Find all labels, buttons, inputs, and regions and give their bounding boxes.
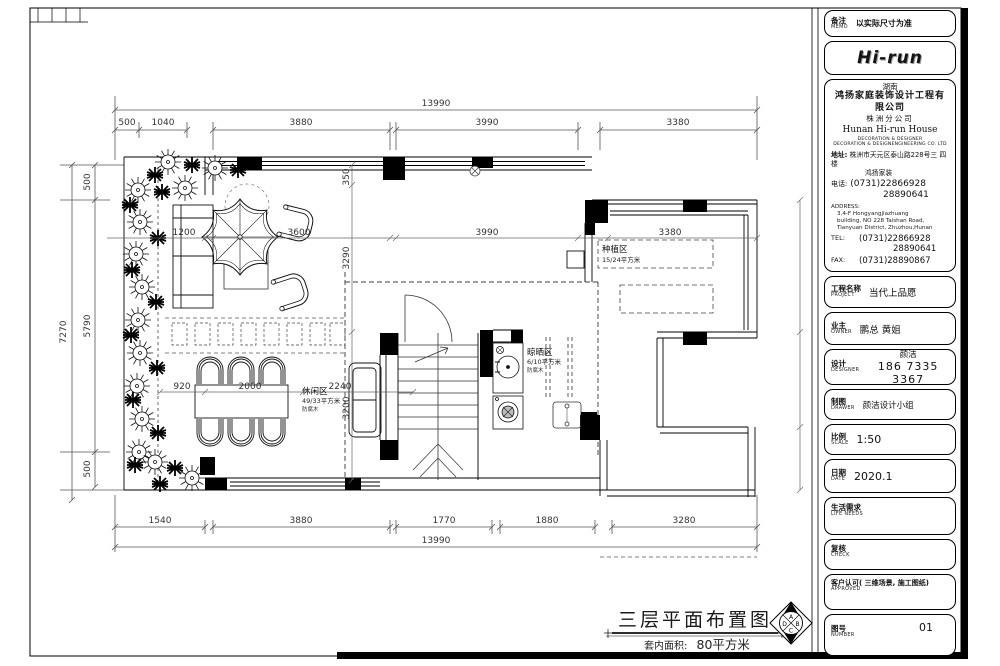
area-label-planting: 种植区 15/24平方米 — [602, 244, 641, 264]
svg-text:C: C — [789, 628, 793, 635]
area-label-drying: 晾晒区 6/10平方米 防腐木 — [527, 347, 562, 374]
door — [405, 295, 452, 342]
dimension-bottom — [112, 495, 760, 557]
dining-chair — [259, 357, 285, 384]
kitchen-counter — [493, 343, 523, 429]
svg-text:6/10平方米: 6/10平方米 — [527, 357, 562, 366]
titleblock-project: 工程名称 PROJECT 当代上品愿 — [824, 276, 956, 308]
titleblock-memo: 备注 MEMO 以实际尺寸为准 — [824, 10, 956, 37]
wall-column — [581, 412, 597, 433]
dim-bot-total: 13990 — [422, 536, 451, 546]
dim-inner-920: 920 — [173, 382, 190, 392]
owner-value: 鹏总 黄姐 — [860, 322, 901, 336]
svg-text:防腐木: 防腐木 — [302, 405, 319, 413]
memo-value: 以实际尺寸为准 — [856, 18, 912, 29]
staircase — [398, 333, 478, 480]
dim-inner-3290: 3290 — [342, 246, 352, 269]
drawing-title: 三层平面布置图 套内面积: 80平方米 — [604, 609, 787, 653]
svg-text:B: B — [795, 621, 799, 628]
dim-top-total: 13990 — [422, 99, 451, 109]
titleblock-scale: 比例 SCALE 1:50 — [824, 424, 956, 455]
drawing-area-value: 80平方米 — [697, 637, 751, 652]
dining-chair — [228, 419, 254, 446]
dim-left-3: 500 — [83, 460, 93, 477]
dim-inner-1200: 1200 — [173, 228, 196, 238]
dim-top-4: 3990 — [476, 118, 499, 128]
svg-text:D: D — [782, 621, 787, 628]
company-fax: FAX: (0731)28890867 — [831, 256, 949, 266]
dining-chair — [197, 419, 223, 446]
dim-top-5: 3380 — [667, 118, 690, 128]
titleblock-designer: 设计 DESIGNER 颜洁 186 7335 3367 — [824, 349, 956, 385]
drawer-value: 颜洁设计小组 — [863, 399, 914, 411]
cad-drawing-sheet: { "title_block": { "memo": {"label":"备注"… — [0, 0, 1000, 666]
dim-bot-2: 3880 — [290, 516, 313, 526]
svg-text:49/33平方米: 49/33平方米 — [302, 396, 341, 405]
terrace-bench — [173, 205, 213, 308]
company-logo: Hi-run — [831, 44, 949, 72]
dining-chair — [259, 419, 285, 446]
titleblock-check: 复核 CHECK — [824, 539, 956, 570]
dim-inner-3200: 3200 — [342, 396, 352, 419]
dim-bot-1: 1540 — [149, 516, 172, 526]
dim-inner-350: 350 — [342, 168, 352, 185]
company-address-en: ADDRESS: 3,4-F Hongyangjiazhuang buildin… — [831, 204, 949, 232]
dim-inner-3380: 3380 — [659, 228, 682, 238]
dim-left-1: 500 — [83, 173, 93, 190]
dim-top-2: 1040 — [152, 118, 175, 128]
titleblock-logo: Hi-run — [824, 41, 956, 75]
dim-inner-2000: 2000 — [239, 382, 262, 392]
dim-top-1: 500 — [118, 118, 135, 128]
svg-text:种植区: 种植区 — [602, 244, 628, 255]
svg-text:休闲区: 休闲区 — [302, 386, 328, 397]
dim-left-total: 7270 — [59, 320, 69, 343]
dim-left-2: 5790 — [83, 314, 93, 337]
date-value: 2020.1 — [854, 470, 893, 483]
designer-name: 颜洁 — [867, 349, 949, 360]
company-address: 地址: 株洲市天元区泰山路228号三 四楼 鸿扬家装 — [831, 151, 949, 177]
svg-text:防腐木: 防腐木 — [527, 366, 544, 374]
drawing-area-label: 套内面积: — [644, 639, 687, 652]
dining-table-set — [195, 357, 288, 446]
titleblock-number: 图号 NUMBER 01 — [824, 614, 956, 656]
titleblock-date: 日期 DATE 2020.1 — [824, 459, 956, 493]
paver-strip — [172, 323, 345, 345]
sheet-number-value: 01 — [919, 621, 933, 634]
svg-text:晾晒区: 晾晒区 — [527, 347, 553, 358]
north-compass-icon: A B C D — [770, 602, 812, 644]
svg-text:套内面积: 80平方米: 套内面积: 80平方米 — [644, 634, 750, 653]
loveseat — [349, 363, 381, 437]
patio-chair — [271, 271, 312, 312]
titleblock-approved: 客户认可( 三维场景, 施工图纸) APPROVED — [824, 574, 956, 610]
titleblock-company: 湖南 鸿扬家庭装饰设计工程有限公司 株洲分公司 Hunan Hi-run Hou… — [824, 79, 956, 272]
project-value: 当代上品愿 — [869, 285, 917, 299]
company-phone: 电话: (0731)22866928 28890641 — [831, 179, 949, 201]
light-symbol — [470, 166, 480, 176]
dim-bot-4: 1880 — [536, 516, 559, 526]
dim-inner-3990: 3990 — [476, 228, 499, 238]
dim-inner-3600: 3600 — [288, 228, 311, 238]
titleblock-life-needs: 生活需求 LIFE NEEDS — [824, 497, 956, 535]
dim-top-3: 3880 — [290, 118, 313, 128]
drawing-title-text: 三层平面布置图 — [618, 609, 772, 631]
svg-text:15/24平方米: 15/24平方米 — [602, 255, 641, 264]
titleblock-owner: 业主 OWNER 鹏总 黄姐 — [824, 312, 956, 345]
designer-phone: 186 7335 3367 — [867, 360, 949, 385]
patio-umbrella-table — [202, 184, 315, 311]
dim-inner-2240: 2240 — [329, 382, 352, 392]
dining-chair — [197, 357, 223, 384]
scale-value: 1:50 — [857, 433, 882, 446]
wall-box — [567, 251, 584, 268]
dim-bot-3: 1770 — [433, 516, 456, 526]
titleblock-drawer: 制图 DRAWER 颜洁设计小组 — [824, 389, 956, 420]
dining-chair — [228, 357, 254, 384]
title-block: 备注 MEMO 以实际尺寸为准 Hi-run 湖南 鸿扬家庭装饰设计工程有限公司… — [822, 0, 960, 666]
walls — [124, 157, 757, 497]
plants — [122, 149, 246, 492]
company-tel: TEL: (0731)22866928 28890641 — [831, 234, 949, 254]
dim-bot-5: 3280 — [673, 516, 696, 526]
